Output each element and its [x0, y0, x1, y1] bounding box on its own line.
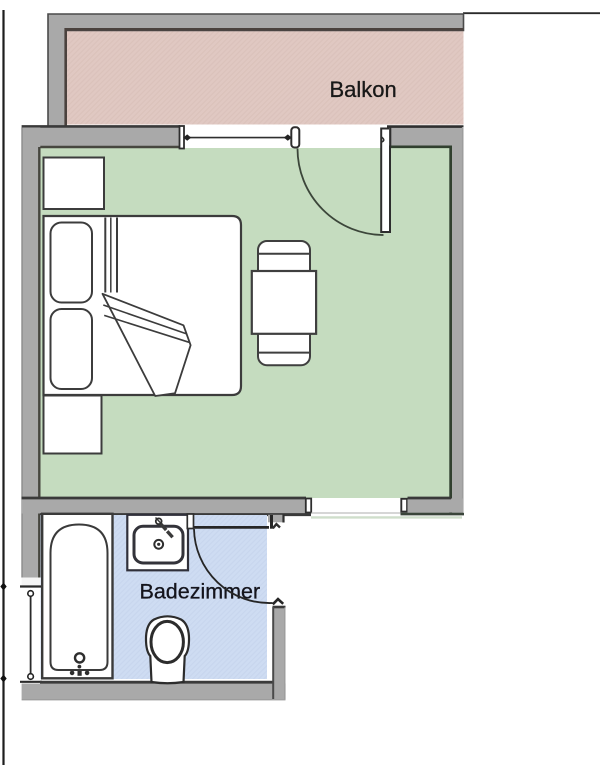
svg-text:Badezimmer: Badezimmer	[140, 580, 261, 604]
svg-text:Balkon: Balkon	[330, 77, 397, 102]
